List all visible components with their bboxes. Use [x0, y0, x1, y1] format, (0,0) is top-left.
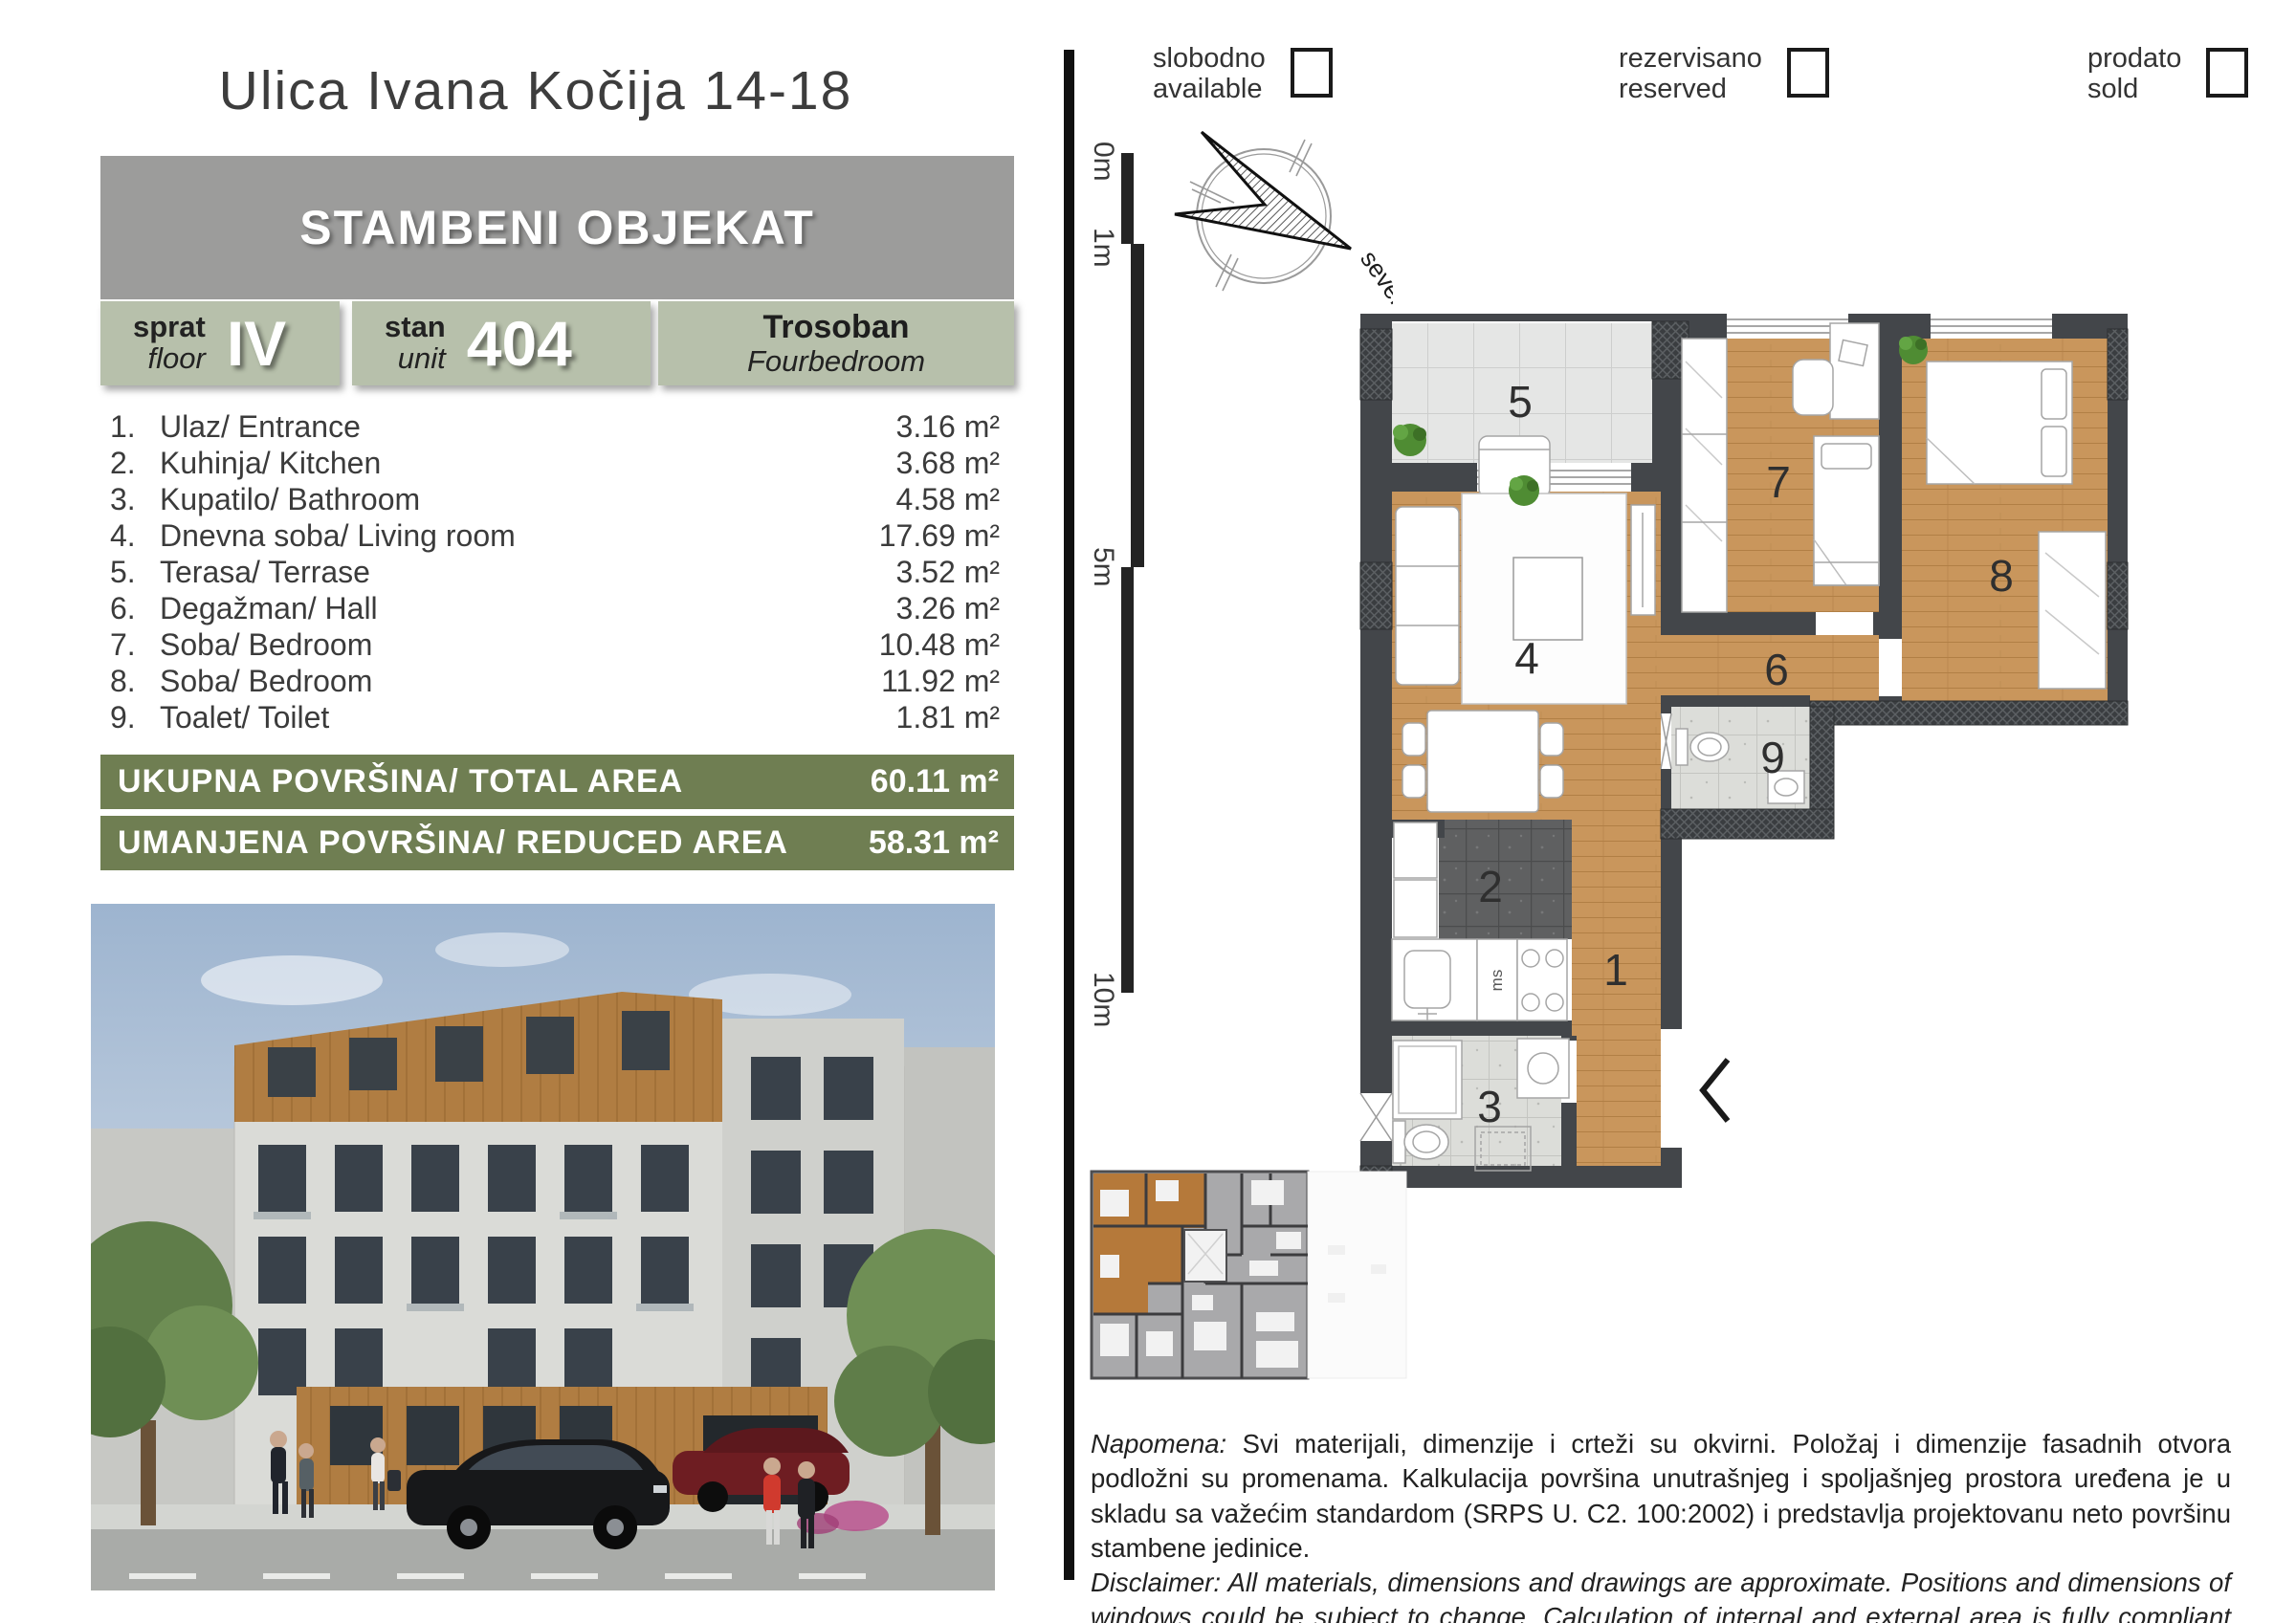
- room-row: 5.Terasa/ Terrase3.52 m²: [110, 555, 1000, 591]
- room-row: 6.Degažman/ Hall3.26 m²: [110, 591, 1000, 627]
- room-label-3: 3: [1477, 1082, 1502, 1131]
- reduced-area-value: 58.31 m²: [869, 824, 999, 862]
- legend-available-sr: slobodno: [1153, 44, 1266, 75]
- disclaimer-text: All materials, dimensions and drawings a…: [1091, 1568, 2231, 1623]
- legend-checkbox-sold: [2206, 48, 2248, 98]
- floor-label-en: floor: [148, 343, 206, 375]
- room-row: 2.Kuhinja/ Kitchen3.68 m²: [110, 446, 1000, 482]
- room-label-2: 2: [1478, 862, 1503, 911]
- building-header-label: STAMBENI OBJEKAT: [299, 200, 815, 255]
- legend-sold-sr: prodato: [2087, 44, 2181, 75]
- scale-label-10m: 10m: [1087, 972, 1119, 1027]
- kitchen-unit-label: ms: [1488, 970, 1506, 992]
- room-row: 7.Soba/ Bedroom10.48 m²: [110, 627, 1000, 664]
- total-area-label: UKUPNA POVRŠINA/ TOTAL AREA: [118, 763, 683, 801]
- legend-checkbox-reserved: [1787, 48, 1829, 98]
- total-area-value: 60.11 m²: [871, 763, 999, 801]
- scale-segment-1: [1121, 153, 1134, 244]
- room-row: 1.Ulaz/ Entrance3.16 m²: [110, 409, 1000, 446]
- unit-value: 404: [467, 307, 572, 380]
- legend-checkbox-available: [1291, 48, 1333, 98]
- total-area-bar: UKUPNA POVRŠINA/ TOTAL AREA 60.11 m²: [100, 755, 1014, 809]
- napomena-paragraph: Napomena: Svi materijali, dimenzije i cr…: [1091, 1427, 2231, 1566]
- room-kitchen-floor: [1439, 820, 1572, 939]
- napomena-text: Svi materijali, dimenzije i crteži su ok…: [1091, 1429, 2231, 1563]
- reduced-area-label: UMANJENA POVRŠINA/ REDUCED AREA: [118, 824, 788, 862]
- floor-info-box: sprat floor IV: [100, 301, 340, 385]
- room-label-6: 6: [1764, 645, 1789, 694]
- legend-sold-en: sold: [2087, 75, 2181, 105]
- room-row: 9.Toalet/ Toilet1.81 m²: [110, 700, 1000, 736]
- legend-item-available: slobodno available: [1153, 44, 1333, 105]
- room-label-7: 7: [1766, 457, 1791, 507]
- brochure-page: Ulica Ivana Kočija 14-18 STAMBENI OBJEKA…: [0, 0, 2296, 1623]
- entrance-door-mark: [1703, 1060, 1728, 1121]
- type-label-en: Fourbedroom: [747, 345, 925, 379]
- unit-label-en: unit: [398, 343, 446, 375]
- building-photo: [91, 904, 995, 1590]
- floor-value: IV: [227, 307, 286, 380]
- room-row: 8.Soba/ Bedroom11.92 m²: [110, 664, 1000, 700]
- legend-item-reserved: rezervisano reserved: [1619, 44, 1829, 105]
- scale-segment-3: [1121, 567, 1134, 993]
- notes-block: Napomena: Svi materijali, dimenzije i cr…: [1091, 1427, 2231, 1623]
- legend-reserved-en: reserved: [1619, 75, 1762, 105]
- scale-label-5m: 5m: [1087, 547, 1119, 587]
- scale-segment-2: [1131, 244, 1144, 567]
- page-title: Ulica Ivana Kočija 14-18: [57, 59, 1014, 122]
- type-label-sr: Trosoban: [762, 309, 909, 345]
- room-label-9: 9: [1760, 733, 1785, 782]
- floor-label-sr: sprat: [133, 312, 206, 343]
- room-label-5: 5: [1508, 377, 1533, 427]
- disclaimer-paragraph: Disclaimer: All materials, dimensions an…: [1091, 1566, 2231, 1623]
- column-divider: [1064, 50, 1074, 1580]
- room-row: 3.Kupatilo/ Bathroom4.58 m²: [110, 482, 1000, 518]
- room-label-8: 8: [1989, 551, 2014, 601]
- unit-label-sr: stan: [385, 312, 446, 343]
- floor-plan: 5 4 7 8 6 9 2 1 3 ms: [1336, 275, 2139, 1213]
- napomena-label: Napomena:: [1091, 1429, 1226, 1459]
- room-row: 4.Dnevna soba/ Living room17.69 m²: [110, 518, 1000, 555]
- scale-label-0m: 0m: [1087, 142, 1119, 182]
- legend-available-en: available: [1153, 75, 1266, 105]
- scale-label-1m: 1m: [1087, 228, 1119, 268]
- room-label-4: 4: [1514, 633, 1539, 683]
- legend-reserved-sr: rezervisano: [1619, 44, 1762, 75]
- legend-item-sold: prodato sold: [2087, 44, 2248, 105]
- floor-overview-map: [1089, 1169, 1409, 1381]
- disclaimer-label: Disclaimer:: [1091, 1568, 1221, 1597]
- building-header-bar: STAMBENI OBJEKAT: [100, 156, 1014, 299]
- unit-info-box: stan unit 404: [352, 301, 651, 385]
- room-label-1: 1: [1603, 945, 1628, 995]
- reduced-area-bar: UMANJENA POVRŠINA/ REDUCED AREA 58.31 m²: [100, 816, 1014, 870]
- apartment-type-box: Trosoban Fourbedroom: [658, 301, 1014, 385]
- room-list: 1.Ulaz/ Entrance3.16 m² 2.Kuhinja/ Kitch…: [110, 409, 1000, 736]
